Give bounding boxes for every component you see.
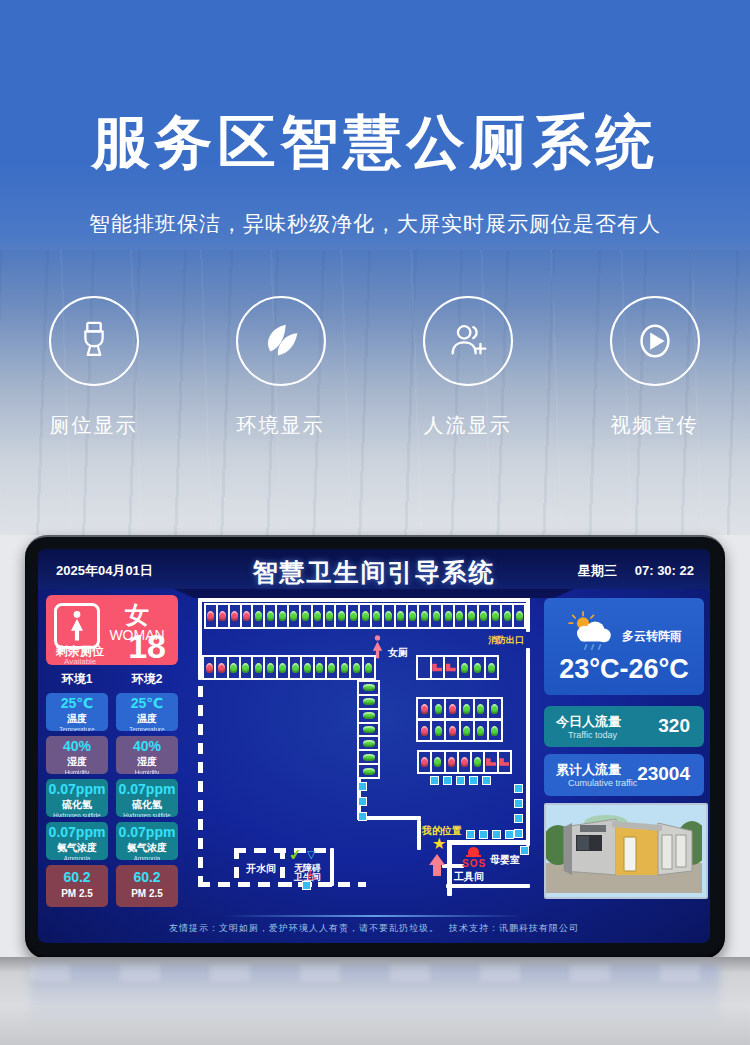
toilet-stall-icon (397, 611, 404, 621)
temperature-label: 温度 (116, 712, 178, 726)
traffic-today-card: 今日人流量 Traffic today 320 (544, 706, 704, 747)
stall-cell-available (358, 736, 379, 750)
toilet-stall-icon (328, 663, 335, 673)
temperature-label-en: Temperature (119, 726, 175, 731)
toilet-stall-icon (421, 704, 428, 714)
h2s-value: 0.07ppm (46, 781, 108, 797)
sink (520, 846, 529, 855)
stall-cell-available (358, 681, 379, 695)
stall-cell-available (264, 656, 276, 679)
toilet-stall-icon (350, 611, 357, 621)
screen-footer-text: 友情提示：文明如厕，爱护环境人人有责，请不要乱扔垃圾。 技术支持：讯鹏科技有限公… (38, 922, 710, 935)
ammonia-value: 0.07ppm (46, 824, 108, 840)
toilet-stall-icon (363, 684, 375, 691)
weekday-label: 星期三 (578, 563, 617, 578)
toilet-stall-icon (255, 611, 262, 621)
squat-toilet-icon (446, 663, 456, 672)
stall-cell-urinal-occupied (444, 656, 458, 679)
stall-cell-occupied (217, 604, 229, 628)
header-trapezoid (174, 589, 574, 598)
env-column-1-label: 环境1 (46, 671, 108, 688)
stall-cell-occupied (205, 604, 217, 628)
toilet-stall-icon (242, 663, 249, 673)
stall-cell-available (359, 604, 371, 628)
dashed-wall (280, 848, 285, 884)
stall-cell-available (488, 720, 502, 741)
toilet-stall-icon (304, 663, 311, 673)
toilet-stall-icon (218, 663, 225, 673)
pm25-card: 60.2 PM 2.5 (46, 865, 108, 907)
nursery-room-label: 母婴室 (490, 853, 520, 867)
traffic-today-label-en: Traffic today (568, 730, 617, 740)
stall-cell-available (474, 720, 488, 741)
stall-cell-available (300, 604, 312, 628)
toilet-stall-icon (423, 667, 424, 668)
toilet-stall-icon (516, 611, 523, 621)
stall-cell-available (431, 720, 445, 741)
stall-cell-urinal-occupied (498, 751, 511, 773)
stall-cell-available (277, 656, 289, 679)
stall-cell-available (314, 656, 326, 679)
toilet-stall-icon (219, 611, 226, 621)
weather-card: 多云转阵雨 23°C-26°C (544, 598, 704, 695)
stall-cell-available (288, 604, 300, 628)
clock-area: 星期三 07: 30: 22 (564, 562, 694, 580)
humidity-label: 湿度 (116, 755, 178, 769)
wall (446, 884, 530, 888)
stall-cell-occupied (445, 720, 459, 741)
pm25-card-2: 60.2 PM 2.5 (116, 865, 178, 907)
stall-cell-available (289, 656, 301, 679)
play-icon (610, 296, 700, 386)
stall-cell-available (501, 604, 513, 628)
temperature-card-2: 25℃ 温度 Temperature (116, 693, 178, 731)
dashboard-screen: 2025年04月01日 智慧卫生间引导系统 星期三 07: 30: 22 女 W… (38, 549, 710, 943)
stall-cell-available (395, 604, 407, 628)
ammonia-card: 0.07ppm 氨气浓度 Ammonia (46, 822, 108, 860)
sink (482, 776, 491, 785)
toilet-stall-icon (488, 663, 495, 673)
stall-cell-available (358, 764, 379, 778)
feature-label: 环境显示 (187, 412, 374, 439)
toilet-stall-icon (314, 611, 321, 621)
ammonia-label: 氨气浓度 (46, 841, 108, 855)
stall-cell-available (240, 656, 252, 679)
toilet-icon (49, 296, 139, 386)
humidity-value: 40% (116, 738, 178, 754)
leaf-icon (236, 296, 326, 386)
clean-check-icon: ✔ (288, 845, 303, 865)
sink (492, 830, 501, 839)
stall-cell-occupied (445, 751, 458, 773)
stall-cell-occupied (417, 720, 431, 741)
toilet-stall-icon (385, 611, 392, 621)
stall-cell-available (488, 698, 502, 719)
weather-desc: 多云转阵雨 (622, 628, 682, 645)
toilet-stall-icon (230, 663, 237, 673)
block-row-2 (416, 719, 503, 742)
h2s-label: 硫化氢 (116, 798, 178, 812)
humidity-label-en: Humidity (49, 769, 105, 774)
toilet-stall-icon (316, 663, 323, 673)
ammonia-label-en: Ammonia (49, 855, 105, 860)
feature-environment-display: 环境显示 (187, 296, 374, 439)
weather-icon (564, 610, 616, 652)
wall (526, 598, 530, 632)
floor-plan-map: 消防出口 女厕 我的位置 ★ SOS 母婴室 工具间 开水间 ✔ ▽ 无障碍 卫… (194, 598, 534, 906)
toilet-stall-icon (477, 704, 484, 714)
stall-cell-available (471, 751, 484, 773)
stall-cell-occupied (418, 751, 431, 773)
toilet-stall-icon (207, 611, 214, 621)
block-row-1 (416, 697, 503, 720)
squat-toilet-icon (499, 758, 509, 767)
stall-cell-available (474, 698, 488, 719)
ammonia-value: 0.07ppm (116, 824, 178, 840)
stall-cell-occupied (241, 604, 253, 628)
feature-row: 厕位显示 环境显示 人流显示 (0, 296, 750, 439)
toilet-stall-icon (363, 698, 375, 705)
toilet-stall-icon (421, 726, 428, 736)
women-restroom-card: 女 WOMAN 剩余厕位 Available 18 (46, 595, 178, 665)
stall-cell-available (418, 604, 430, 628)
stall-cell-occupied (417, 698, 431, 719)
footer-divider (224, 915, 524, 917)
stall-cell-available (301, 656, 313, 679)
page-title: 服务区智慧公厕系统 (0, 104, 750, 182)
h2s-label-en: Hydrogen sulfide (119, 812, 175, 817)
sink (358, 782, 367, 791)
direction-arrow-icon (429, 854, 445, 865)
toilet-stall-icon (363, 768, 375, 775)
toilet-stall-icon (363, 754, 375, 761)
sink (514, 799, 523, 808)
wall (200, 598, 530, 602)
temperature-label-en: Temperature (49, 726, 105, 731)
toilet-stall-icon (302, 611, 309, 621)
sink (456, 776, 465, 785)
toilet-stall-icon (255, 663, 262, 673)
women-area-label: 女厕 (388, 646, 408, 660)
sink (430, 776, 439, 785)
stall-cell-available (228, 656, 240, 679)
pm25-label: PM 2.5 (116, 888, 178, 899)
stall-cell-urinal-occupied (431, 656, 445, 679)
toilet-stall-icon (456, 611, 463, 621)
stall-cell-available (347, 604, 359, 628)
toilet-stall-icon (480, 611, 487, 621)
stall-cell-urinal-occupied (484, 751, 497, 773)
traffic-total-value: 23004 (637, 763, 690, 785)
traffic-today-value: 320 (658, 715, 690, 737)
toilet-stall-icon (206, 663, 213, 673)
available-label-en: Available (64, 657, 96, 666)
stall-cell-available (407, 604, 419, 628)
tool-room-label: 工具间 (454, 870, 484, 884)
toilet-stall-icon (290, 611, 297, 621)
pm25-label: PM 2.5 (46, 888, 108, 899)
toilet-stall-icon (341, 663, 348, 673)
feature-label: 视频宣传 (561, 412, 748, 439)
sos-label: SOS (462, 858, 486, 869)
toilet-stall-icon (474, 757, 481, 767)
display-monitor: 2025年04月01日 智慧卫生间引导系统 星期三 07: 30: 22 女 W… (25, 535, 725, 959)
sink (466, 830, 475, 839)
available-count: 18 (128, 627, 166, 666)
toilet-stall-icon (363, 726, 375, 733)
top-stall-row (204, 603, 526, 629)
h2s-card: 0.07ppm 硫化氢 Hydrogen sulfide (46, 779, 108, 817)
stall-cell-occupied (445, 698, 459, 719)
humidity-value: 40% (46, 738, 108, 754)
h2s-value: 0.07ppm (116, 781, 178, 797)
toilet-building-photo (544, 803, 708, 899)
stall-cell-occupied (215, 656, 227, 679)
vertical-stall-column (357, 680, 380, 779)
humidity-card: 40% 湿度 Humidity (46, 736, 108, 774)
h2s-label: 硫化氢 (46, 798, 108, 812)
stall-cell-available (442, 604, 454, 628)
stall-cell-available (430, 604, 442, 628)
toilet-stall-icon (435, 726, 442, 736)
sink (514, 814, 523, 823)
stall-cell-available (431, 698, 445, 719)
wall (526, 648, 530, 846)
temperature-label: 温度 (46, 712, 108, 726)
sink (514, 784, 523, 793)
ammonia-label: 氨气浓度 (116, 841, 178, 855)
pm25-value: 60.2 (116, 869, 178, 885)
left-stall-row (202, 655, 376, 680)
toilet-stall-icon (363, 740, 375, 747)
wheelchair-icon: ♿ (306, 868, 318, 883)
toilet-stall-icon (463, 726, 470, 736)
stall-cell-available (383, 604, 395, 628)
traffic-total-label: 累计人流量 (556, 761, 621, 779)
stall-cell-available (264, 604, 276, 628)
traffic-total-card: 累计人流量 Cumulative traffic 23004 (544, 754, 704, 796)
wall (442, 864, 464, 868)
humidity-label-en: Humidity (119, 769, 175, 774)
people-icon (423, 296, 513, 386)
stall-cell-available (466, 604, 478, 628)
stall-cell-available (358, 709, 379, 723)
toilet-stall-icon (504, 611, 511, 621)
toilet-stall-icon (243, 611, 250, 621)
toilet-stall-icon (435, 704, 442, 714)
shower-icon: ▽ (307, 848, 315, 861)
feature-label: 人流显示 (374, 412, 561, 439)
toilet-stall-icon (338, 611, 345, 621)
toilet-stall-icon (365, 663, 372, 673)
humidity-card-2: 40% 湿度 Humidity (116, 736, 178, 774)
sink (479, 830, 488, 839)
fire-exit-label: 消防出口 (488, 634, 524, 647)
toilet-stall-icon (449, 726, 456, 736)
ammonia-label-en: Ammonia (119, 855, 175, 860)
env-column-2-label: 环境2 (116, 671, 178, 688)
hot-water-room-label: 开水间 (246, 862, 276, 876)
sink (505, 830, 514, 839)
toilet-stall-icon (421, 757, 428, 767)
page-subtitle: 智能排班保洁，异味秒级净化，大屏实时展示厕位是否有人 (0, 210, 750, 238)
feature-stall-display: 厕位显示 (0, 296, 187, 439)
h2s-card-2: 0.07ppm 硫化氢 Hydrogen sulfide (116, 779, 178, 817)
toilet-stall-icon (491, 704, 498, 714)
toilet-stall-icon (409, 611, 416, 621)
toilet-stall-icon (492, 611, 499, 621)
pm25-value: 60.2 (46, 869, 108, 885)
squat-row (416, 655, 499, 680)
toilet-stall-icon (449, 704, 456, 714)
stall-cell-available (252, 604, 264, 628)
toilet-stall-icon (433, 611, 440, 621)
wall (417, 820, 421, 850)
stall-cell-available (431, 751, 444, 773)
feature-label: 厕位显示 (0, 412, 187, 439)
toilet-stall-icon (353, 663, 360, 673)
stall-cell-available (326, 656, 338, 679)
toilet-stall-icon (292, 663, 299, 673)
sink (469, 776, 478, 785)
time-label: 07: 30: 22 (635, 563, 694, 578)
stall-cell-available (338, 656, 350, 679)
toilet-stall-icon (448, 757, 455, 767)
traffic-total-label-en: Cumulative traffic (568, 778, 637, 788)
stall-cell-available (252, 656, 264, 679)
toilet-stall-icon (468, 611, 475, 621)
stall-cell-occupied (229, 604, 241, 628)
toilet-stall-icon (326, 611, 333, 621)
stall-cell-available (513, 604, 525, 628)
toilet-stall-icon (477, 726, 484, 736)
sos-alarm-icon (468, 847, 479, 855)
squat-toilet-icon (486, 758, 496, 767)
feature-video-display: 视频宣传 (561, 296, 748, 439)
toilet-stall-icon (474, 663, 481, 673)
stall-cell-available (312, 604, 324, 628)
stall-cell-available (358, 750, 379, 764)
wall (330, 848, 334, 886)
ammonia-card-2: 0.07ppm 氨气浓度 Ammonia (116, 822, 178, 860)
sink (358, 812, 367, 821)
toilet-stall-icon (363, 712, 375, 719)
feature-traffic-display: 人流显示 (374, 296, 561, 439)
toilet-stall-icon (279, 663, 286, 673)
dashed-wall (198, 686, 203, 884)
stall-cell-empty (417, 656, 431, 679)
toilet-stall-icon (421, 611, 428, 621)
weather-temp: 23°C-26°C (544, 654, 704, 685)
toilet-stall-icon (434, 757, 441, 767)
toilet-stall-icon (463, 704, 470, 714)
dashed-wall (234, 848, 239, 884)
traffic-today-label: 今日人流量 (556, 713, 621, 731)
stall-cell-available (454, 604, 466, 628)
stall-cell-available (335, 604, 347, 628)
stall-cell-occupied (203, 656, 215, 679)
toilet-stall-icon (373, 611, 380, 621)
bottom-stall-row (417, 750, 512, 774)
my-location-star-icon: ★ (432, 836, 446, 852)
stall-cell-available (478, 604, 490, 628)
hero-section: 服务区智慧公厕系统 智能排班保洁，异味秒级净化，大屏实时展示厕位是否有人 厕位显… (0, 0, 750, 535)
stall-cell-available (324, 604, 336, 628)
temperature-card: 25℃ 温度 Temperature (46, 693, 108, 731)
stall-cell-available (358, 695, 379, 709)
temperature-value: 25℃ (46, 695, 108, 711)
sink (514, 829, 523, 838)
stall-cell-available (458, 656, 472, 679)
stall-cell-available (350, 656, 362, 679)
women-area-figure (370, 634, 385, 660)
stall-cell-available (460, 720, 474, 741)
temperature-value: 25℃ (116, 695, 178, 711)
toilet-stall-icon (362, 611, 369, 621)
sink (358, 797, 367, 806)
stall-cell-available (490, 604, 502, 628)
stall-cell-available (485, 656, 499, 679)
toilet-stall-icon (231, 611, 238, 621)
humidity-label: 湿度 (46, 755, 108, 769)
sink (443, 776, 452, 785)
toilet-stall-icon (491, 726, 498, 736)
toilet-stall-icon (445, 611, 452, 621)
stall-cell-available (276, 604, 288, 628)
stall-cell-available (471, 656, 485, 679)
wall (447, 840, 530, 845)
toilet-stall-icon (267, 611, 274, 621)
stall-cell-available (371, 604, 383, 628)
stall-cell-occupied (458, 751, 471, 773)
squat-toilet-icon (432, 663, 442, 672)
toilet-stall-icon (267, 663, 274, 673)
stall-cell-available (460, 698, 474, 719)
floor-highlight (30, 965, 720, 981)
toilet-stall-icon (461, 757, 468, 767)
stall-cell-available (358, 723, 379, 737)
h2s-label-en: Hydrogen sulfide (49, 812, 105, 817)
toilet-stall-icon (279, 611, 286, 621)
toilet-stall-icon (461, 663, 468, 673)
